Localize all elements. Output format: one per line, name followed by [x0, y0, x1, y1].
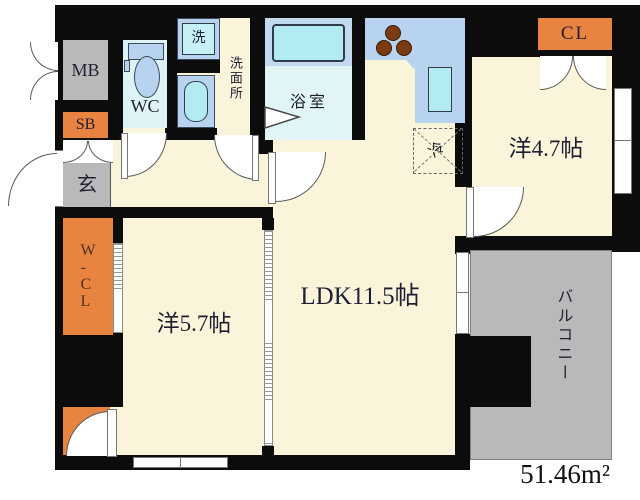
laundry-label: 洗: [177, 18, 220, 60]
toilet-label: WC: [123, 95, 167, 117]
wall: [173, 5, 640, 18]
entrance-door-arc: [8, 153, 57, 206]
window-mullion: [180, 457, 181, 468]
wall: [55, 207, 273, 218]
window-mullion: [614, 140, 632, 141]
wall: [352, 5, 365, 140]
balcony-label: バルコニー: [548, 263, 576, 408]
wall: [55, 455, 470, 470]
floor-plan: バルコニー WC 洗 洗面所 浴室 冷 MB: [0, 0, 640, 500]
door-leaf: [466, 187, 474, 238]
door-leaf: [252, 135, 259, 181]
room-57-label: 洋5.7帖: [135, 311, 253, 338]
meter-box-label: MB: [63, 40, 108, 100]
stove-icon: [365, 18, 425, 60]
washroom-label: 洗面所: [224, 46, 246, 110]
door-leaf: [121, 133, 128, 179]
wall: [55, 335, 120, 407]
window: [614, 88, 632, 194]
wall: [165, 128, 217, 140]
wall: [262, 218, 274, 230]
wash-basin-icon: [177, 75, 215, 128]
walk-in-closet-label: W - C L: [63, 222, 113, 332]
wall: [108, 40, 123, 140]
door-arc: [30, 42, 58, 71]
entrance-label: 玄: [63, 163, 111, 207]
sliding-door-panel: [265, 400, 272, 440]
wall: [455, 18, 540, 57]
toilet-icon: [124, 42, 166, 100]
shoe-box-label: SB: [63, 112, 108, 138]
outside-area: [614, 252, 640, 500]
bathtub-icon: [272, 24, 345, 62]
room-47-label: 洋4.7帖: [487, 136, 605, 163]
balcony-pillar: [467, 336, 531, 407]
total-area-label: 51.46m²: [420, 456, 610, 492]
kitchen-sink-icon: [428, 67, 452, 112]
window-mullion: [456, 292, 469, 293]
wall: [165, 60, 220, 73]
door-leaf: [107, 409, 117, 457]
wall: [262, 446, 274, 455]
sliding-door-panel: [265, 300, 272, 340]
wall: [113, 218, 123, 245]
ldk-label: LDK11.5帖: [285, 282, 435, 312]
closet-cl-label: CL: [538, 18, 612, 50]
wall: [55, 5, 175, 40]
door-arc: [30, 71, 58, 100]
door-leaf: [268, 152, 276, 204]
wall: [63, 100, 108, 112]
wall: [250, 5, 265, 140]
sliding-door-panel: [114, 290, 122, 332]
window: [456, 252, 469, 334]
folding-door-icon: [264, 106, 302, 130]
